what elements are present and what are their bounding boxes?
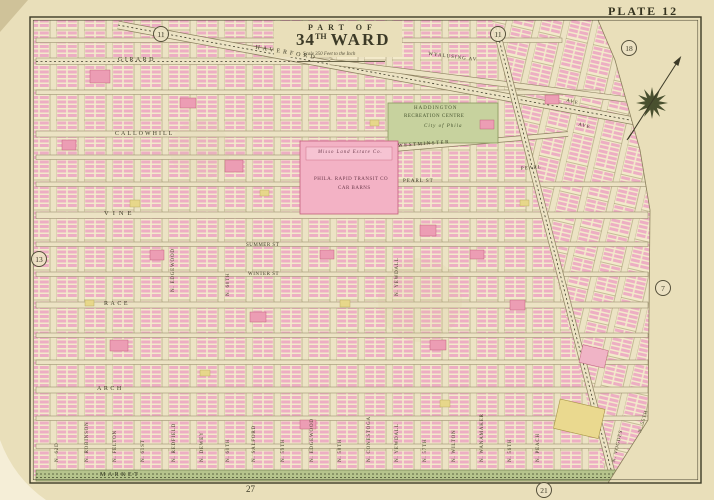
street-label-n-62d: N. 62D xyxy=(55,442,60,462)
plate-title: PLATE 12 xyxy=(608,5,678,17)
adjacent-plate-ref-left: 13 xyxy=(31,251,47,267)
street-label-n-edgewood-mid: N. EDGEWOOD xyxy=(171,248,176,292)
atlas-page: PLATE 12 PART OF 34THWARD Scale 350 Feet… xyxy=(0,0,714,500)
street-label-n-redfield: N. REDFIELD xyxy=(172,423,177,462)
street-label-n-conestoga: N. CONESTOGA xyxy=(367,416,372,462)
car-barns-label-line1: PHILA. RAPID TRANSIT CO xyxy=(314,177,388,182)
adjacent-plate-ref-top-right: 18 xyxy=(621,40,637,56)
street-label-n-60th: N. 60TH xyxy=(226,439,231,462)
street-label-n-yewdall: N. YEWDALL xyxy=(395,423,400,462)
adjacent-plate-ref-top-center: 11 xyxy=(490,26,506,42)
street-label-n-felton: N. FELTON xyxy=(113,430,118,462)
car-barns-owner-label: Misso Land Estate Co. xyxy=(318,151,383,156)
adjacent-plate-ref-right: 7 xyxy=(655,280,671,296)
map-canvas xyxy=(0,0,714,500)
street-label-girard: GIRARD xyxy=(118,57,156,63)
street-label-n-robinson: N. ROBINSON xyxy=(85,422,90,462)
street-label-n-59th: N. 59TH xyxy=(281,439,286,462)
street-label-winter: WINTER ST xyxy=(248,272,279,277)
street-label-n-56th: N. 56TH xyxy=(508,439,513,462)
street-label-arch: ARCH xyxy=(97,386,124,392)
park-label-line1: HADDINGTON xyxy=(414,106,458,111)
paper-stain xyxy=(170,120,230,180)
street-label-n-edgewood: N. EDGEWOOD xyxy=(310,418,315,462)
page-number-bottom: 27 xyxy=(246,485,255,494)
street-label-n-57th: N. 57TH xyxy=(423,439,428,462)
park-label-line2: RECREATION CENTRE xyxy=(404,114,464,119)
street-label-pearl-st: PEARL ST xyxy=(403,179,434,184)
street-label-n-61st: N. 61ST xyxy=(141,439,146,462)
park-label-line3: City of Phila xyxy=(424,124,463,129)
street-label-n-yewdall-mid: N. YEWDALL xyxy=(395,257,400,296)
street-label-n-peach: N. PEACH xyxy=(536,433,541,462)
ward-word: WARD xyxy=(331,30,391,49)
street-label-callowhill: CALLOWHILL xyxy=(115,131,174,137)
adjacent-plate-ref-top-left: 11 xyxy=(153,26,169,42)
street-label-summer: SUMMER ST xyxy=(246,243,279,248)
street-label-n-salford: N. SALFORD xyxy=(252,425,257,462)
street-label-n-60th-mid: N. 60TH xyxy=(226,273,231,296)
street-label-race: RACE xyxy=(104,301,130,307)
street-label-n-dewey: N. DEWEY xyxy=(200,431,205,462)
street-label-n-wilton: N. WILTON xyxy=(452,430,457,462)
title-ward: 34THWARD xyxy=(296,31,391,48)
street-label-vine: VINE xyxy=(104,211,136,218)
street-label-n-wanamaker: N. WANAMAKER xyxy=(480,413,485,462)
street-label-market: MARKET xyxy=(100,472,140,478)
street-label-n-58th: N. 58TH xyxy=(338,439,343,462)
ward-number: 34 xyxy=(296,30,315,49)
adjacent-plate-ref-bottom-right: 21 xyxy=(536,482,552,498)
car-barns-label-line2: CAR BARNS xyxy=(338,186,371,191)
scale-rule xyxy=(299,61,385,62)
paper-stain xyxy=(378,258,462,342)
ward-suffix: TH xyxy=(315,32,327,41)
